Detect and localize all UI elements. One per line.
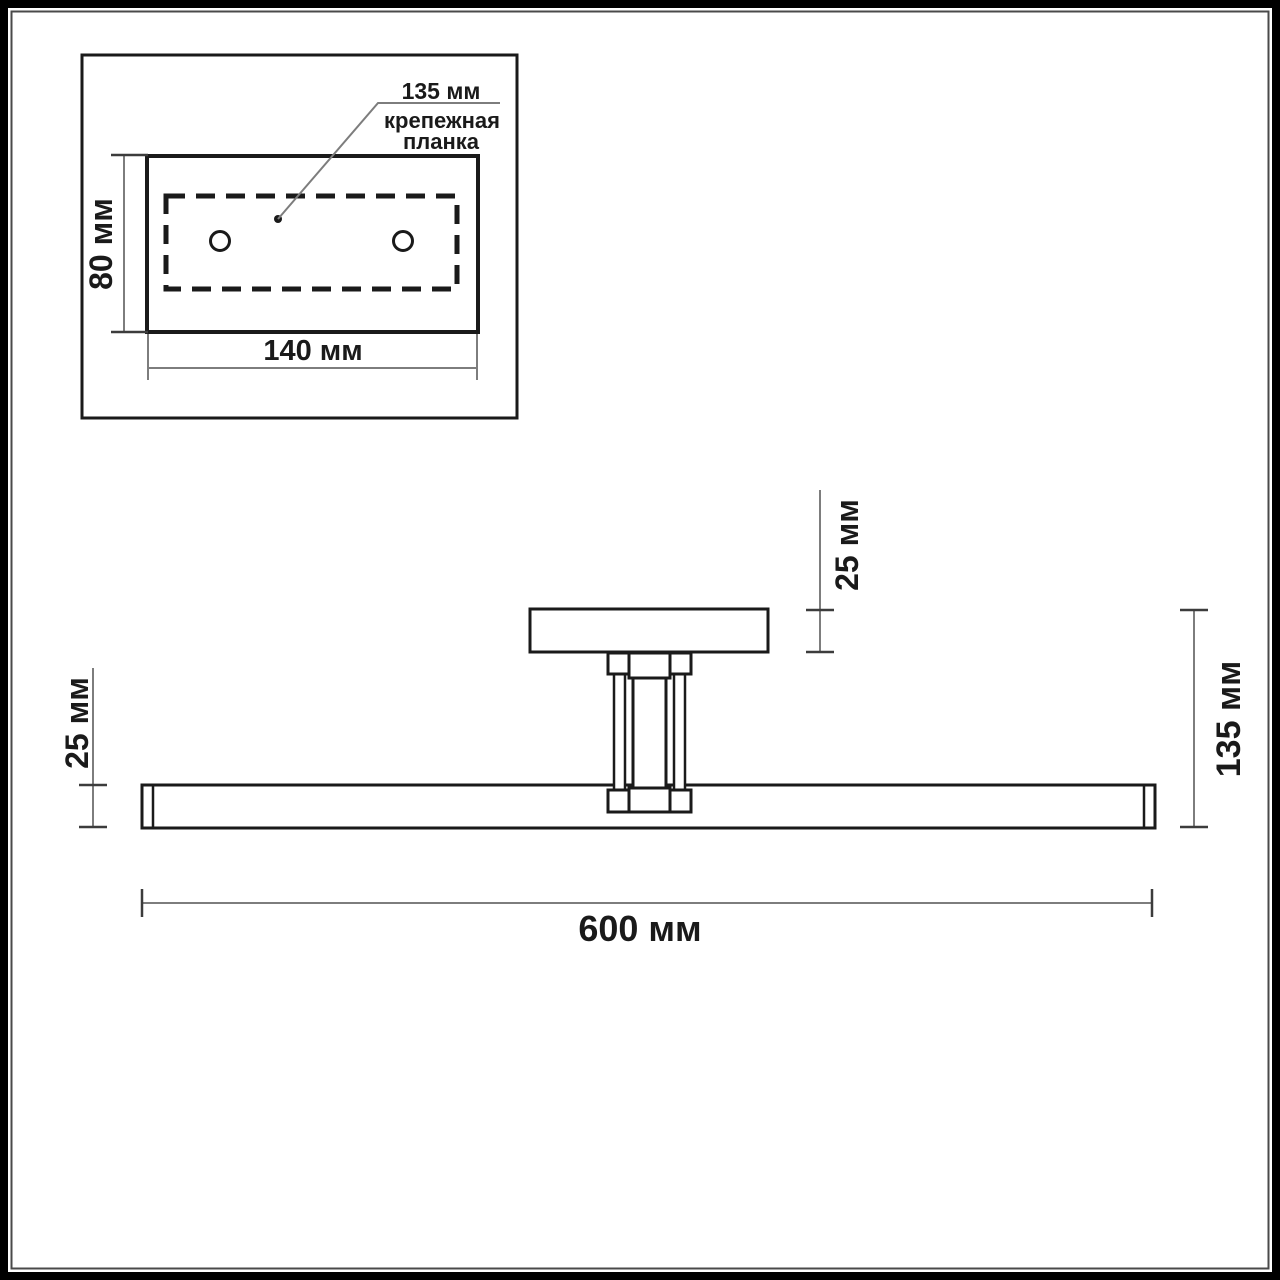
screw-hole-left xyxy=(211,232,230,251)
inset-width-dim-label: 140 мм xyxy=(263,335,362,367)
inset-mounting-view: 135 мм крепежная планка 80 мм 140 мм xyxy=(82,55,517,418)
stem-left-rod xyxy=(614,668,625,796)
base-plate-outline xyxy=(147,156,478,332)
screw-hole-right xyxy=(394,232,413,251)
callout-dimension-label: 135 мм xyxy=(402,78,481,104)
dimension-drawing-svg: 135 мм крепежная планка 80 мм 140 мм xyxy=(0,0,1280,1280)
stem-center-column xyxy=(633,678,666,788)
mount-block xyxy=(530,609,768,652)
stem-right-foot-collar xyxy=(670,790,691,812)
drawing-canvas: 135 мм крепежная планка 80 мм 140 мм xyxy=(0,0,1280,1280)
stem-assembly xyxy=(608,653,691,812)
plate-height-dim-label: 25 мм xyxy=(829,499,865,591)
inset-height-dim-label: 80 мм xyxy=(83,198,119,290)
stem-right-rod xyxy=(674,668,685,796)
stem-center-top-box xyxy=(629,653,670,678)
stem-right-top-collar xyxy=(670,653,691,674)
stem-left-foot-collar xyxy=(608,790,629,812)
callout-text-line2: планка xyxy=(403,129,480,154)
bar-height-dim-label: 25 мм xyxy=(59,677,95,769)
stem-left-top-collar xyxy=(608,653,629,674)
stem-center-bottom-box xyxy=(629,788,670,812)
length-dim-label: 600 мм xyxy=(578,908,701,949)
lamp-side-view: 25 мм 25 мм 135 мм 600 мм xyxy=(59,490,1248,949)
total-height-dim-label: 135 мм xyxy=(1210,661,1248,777)
